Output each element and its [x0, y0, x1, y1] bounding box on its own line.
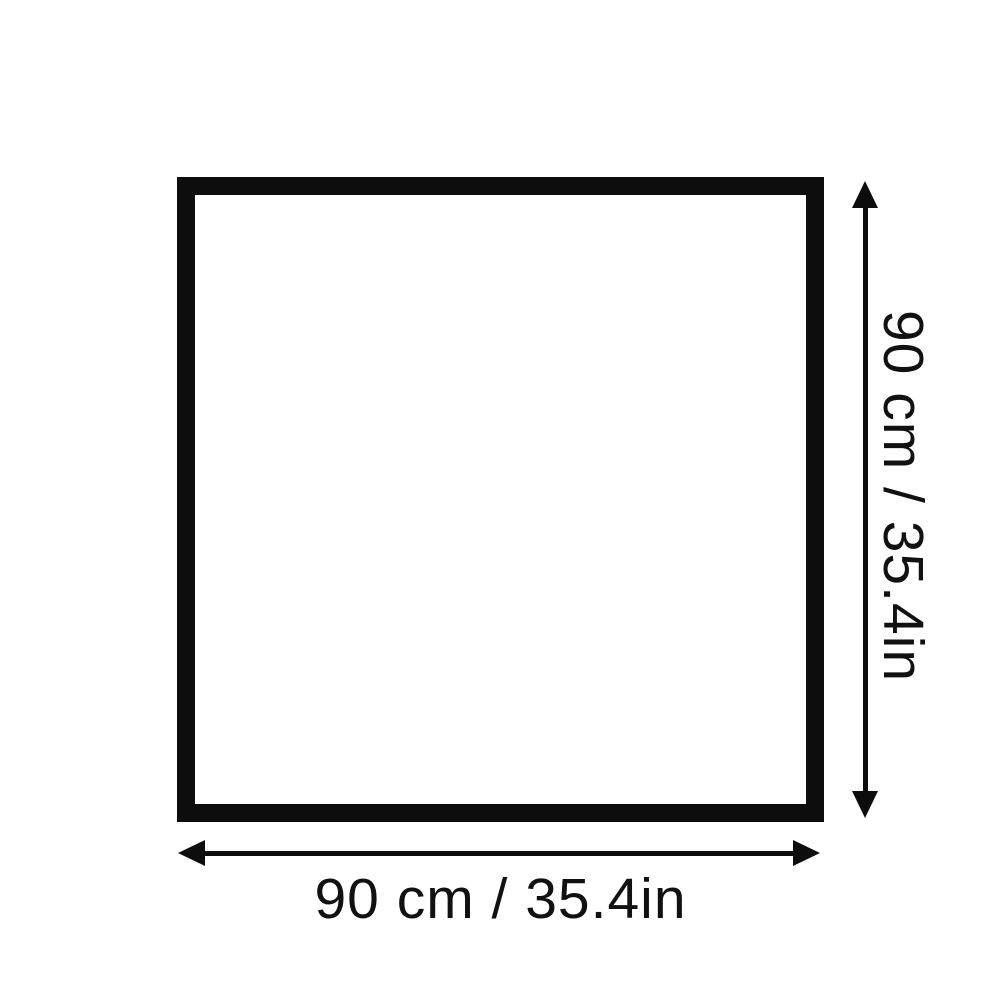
horizontal-arrow-line [205, 851, 793, 856]
width-dimension-arrow [178, 840, 820, 866]
dimension-diagram: 90 cm / 35.4in 90 cm / 35.4in [0, 0, 1000, 1000]
height-dimension-label: 90 cm / 35.4in [870, 310, 936, 682]
width-dimension-label: 90 cm / 35.4in [177, 866, 824, 932]
arrowhead-left-icon [178, 840, 205, 866]
arrowhead-right-icon [793, 840, 820, 866]
arrowhead-up-icon [852, 181, 878, 208]
vertical-arrow-line [863, 208, 868, 791]
arrowhead-down-icon [852, 791, 878, 818]
square-outline [177, 177, 824, 822]
